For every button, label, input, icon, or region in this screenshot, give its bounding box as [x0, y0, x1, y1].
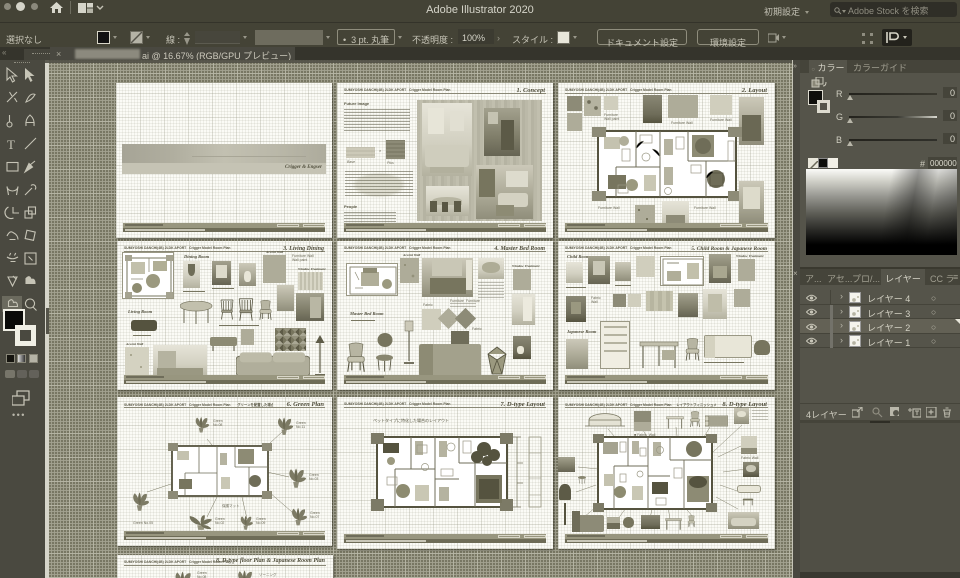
- svg-text:T: T: [7, 137, 15, 152]
